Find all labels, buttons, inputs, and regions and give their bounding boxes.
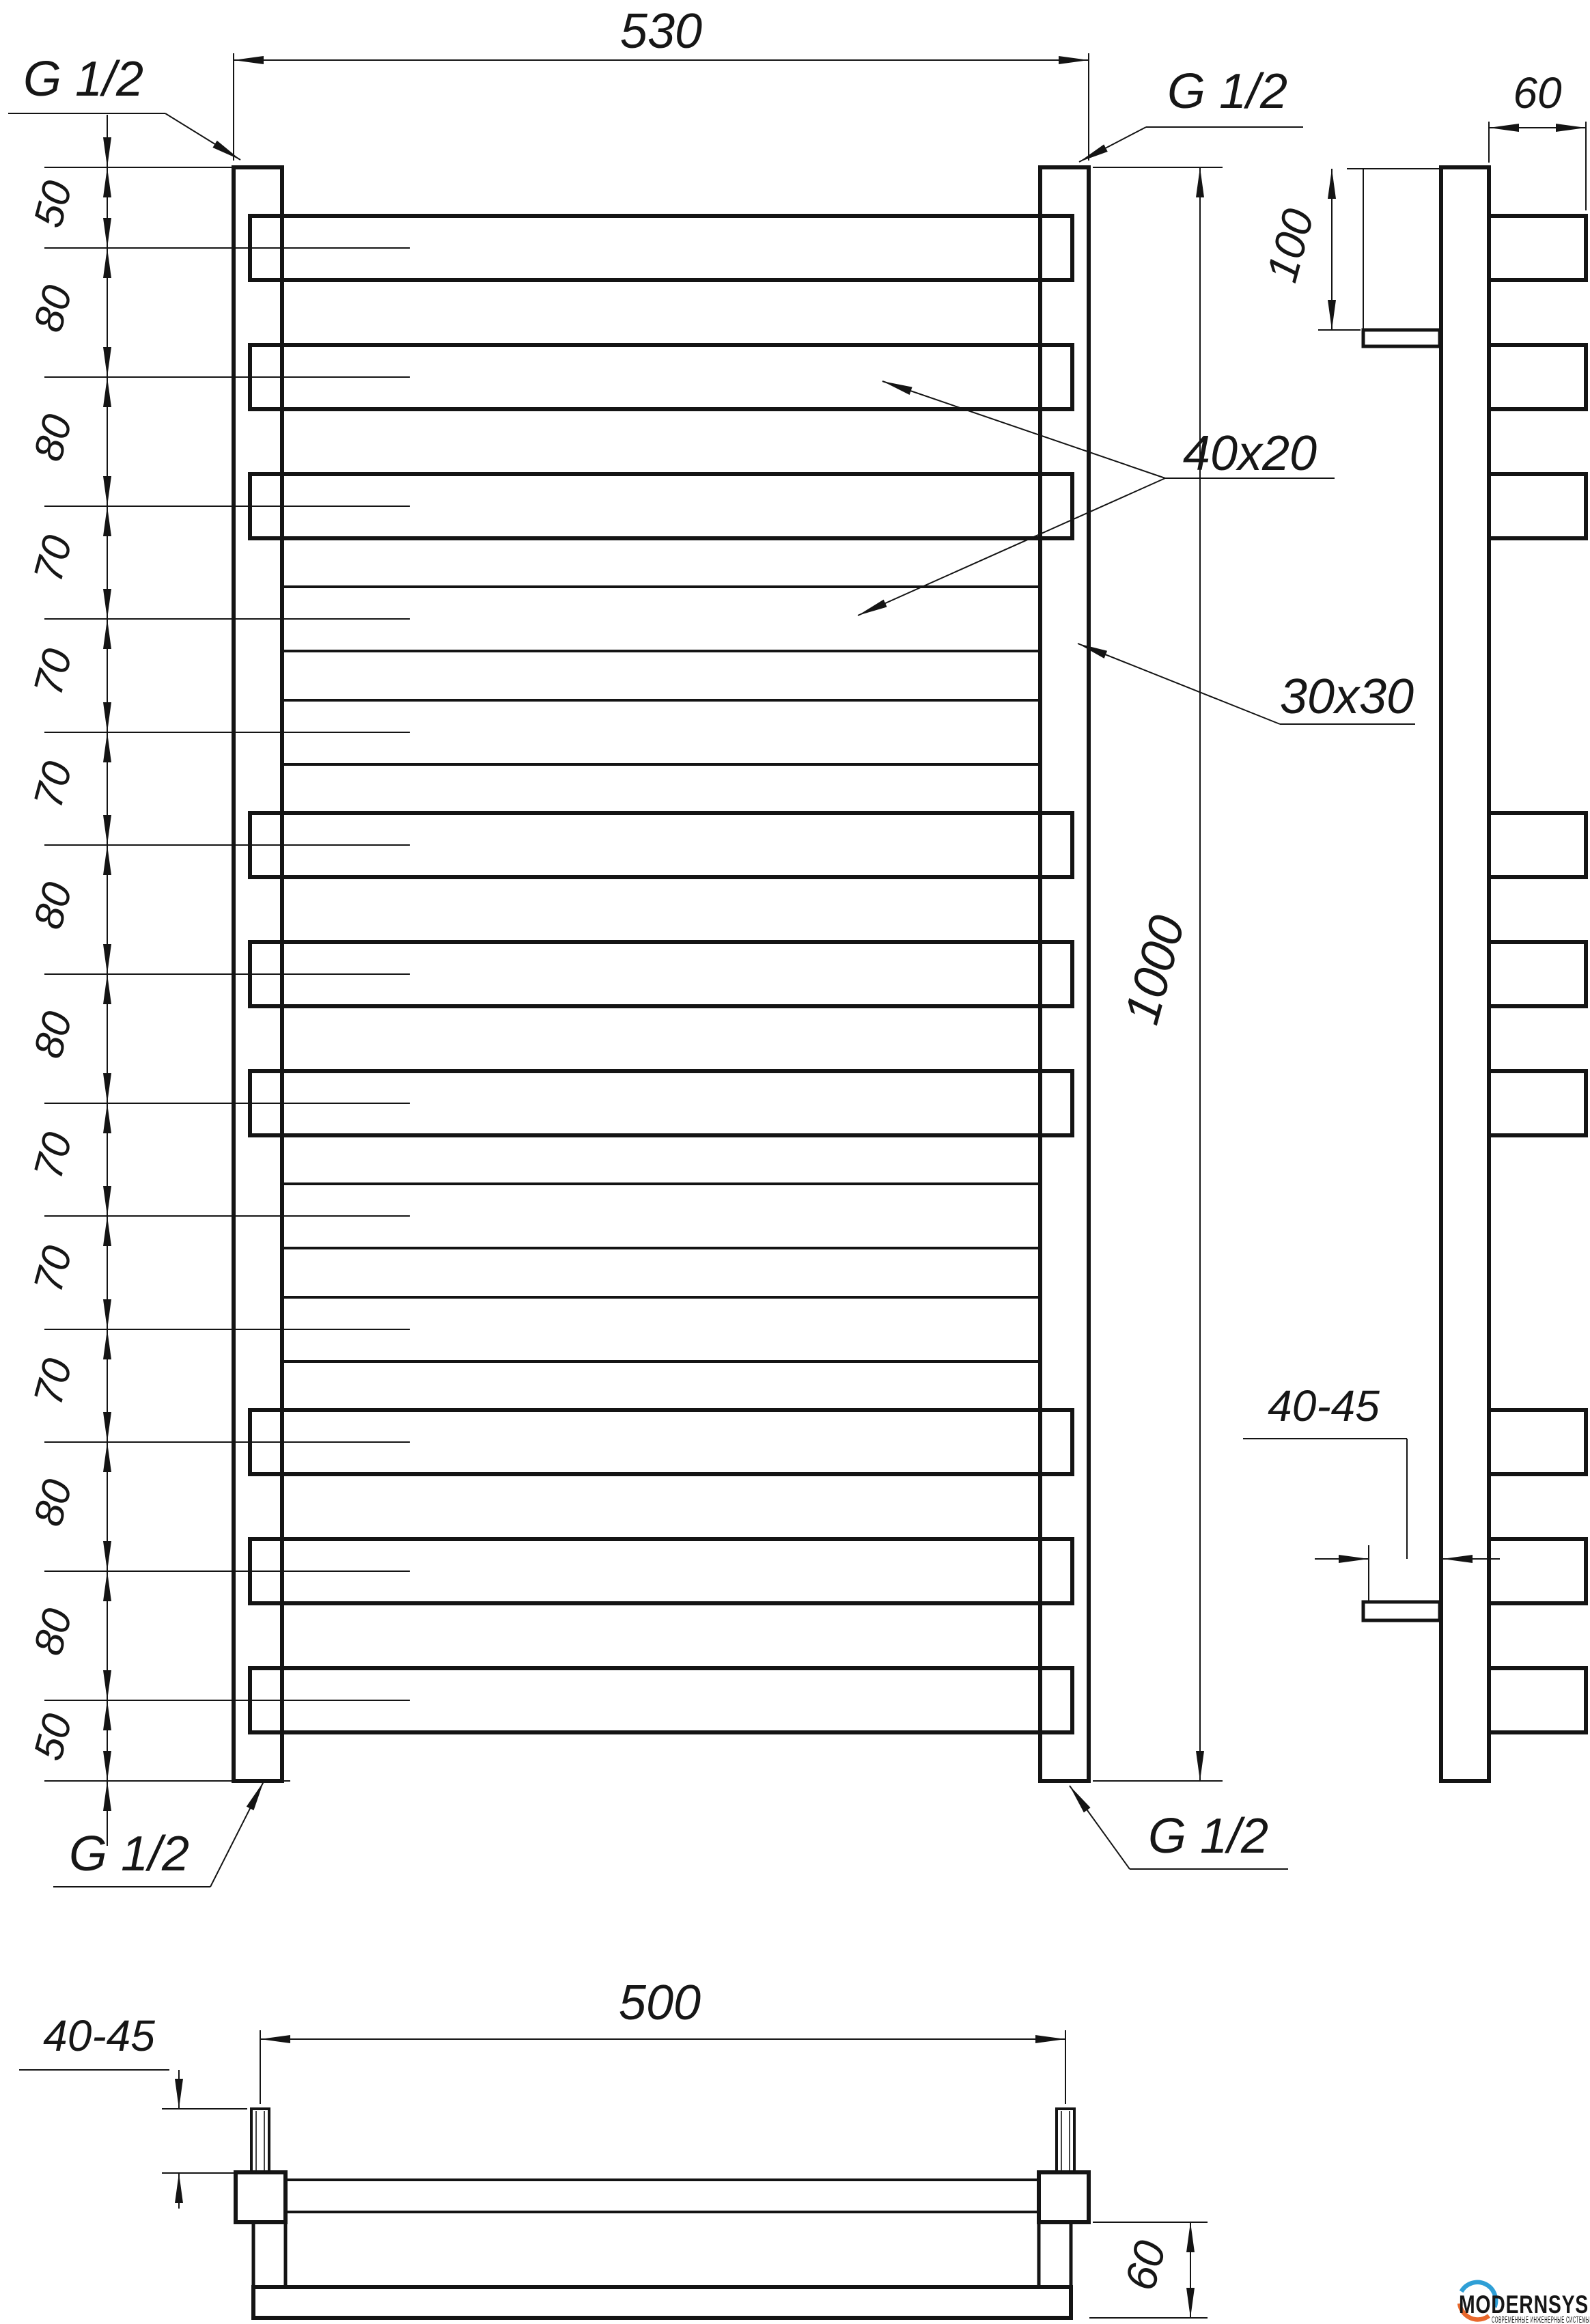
chain-num: 80 — [25, 410, 81, 466]
chain-num: 70 — [25, 1354, 81, 1410]
chain-num: 80 — [25, 878, 81, 934]
chain-num: 80 — [25, 281, 81, 337]
logo-wordmark: MODERNSYS — [1459, 2291, 1589, 2319]
dim-530: 530 — [234, 4, 1089, 161]
top-wall-bracket — [1347, 169, 1441, 346]
wall-pin-left — [251, 2109, 269, 2172]
side-bar — [1489, 345, 1586, 409]
side-bar — [1489, 1668, 1586, 1732]
rail-section-right — [1039, 2172, 1089, 2222]
chain-num: 70 — [25, 757, 81, 813]
dim-text-530: 530 — [620, 4, 702, 59]
dim-text-500: 500 — [619, 1976, 701, 2030]
drawing-canvas: 530 — [0, 0, 1590, 2324]
thread-text: G 1/2 — [1167, 64, 1287, 119]
dim-1000: 1000 — [1093, 167, 1223, 1781]
side-bar — [1489, 1410, 1586, 1474]
leader-arrow — [882, 381, 1165, 478]
logo-tagline: СОВРЕМЕННЫЕ ИНЖЕНЕРНЫЕ СИСТЕМЫ — [1492, 2315, 1590, 2324]
dim-text-1000: 1000 — [1114, 910, 1195, 1029]
thread-text: G 1/2 — [23, 52, 143, 107]
dimension-chain: 50 80 80 70 70 70 80 80 70 70 70 80 80 5… — [25, 115, 410, 1846]
side-view: 100 60 40-45 — [1243, 68, 1586, 1781]
dim-40-45-plan: 40-45 — [19, 2011, 247, 2209]
thread-label-top-left: G 1/2 — [8, 52, 240, 160]
leader-arrow — [858, 478, 1165, 615]
side-bar — [1489, 1539, 1586, 1603]
chain-num: 50 — [25, 176, 81, 232]
callout-text-30x30: 30x30 — [1280, 669, 1414, 724]
thread-text: G 1/2 — [1148, 1809, 1268, 1864]
leader-arrow — [1078, 644, 1280, 724]
dim-text-60: 60 — [1115, 2235, 1175, 2295]
dim-text-60: 60 — [1513, 68, 1562, 117]
chain-num: 50 — [25, 1709, 81, 1765]
leader-arrow — [1070, 1786, 1130, 1869]
side-rail — [1441, 167, 1489, 1781]
pin-body — [251, 2109, 269, 2172]
side-bar — [1489, 813, 1586, 877]
logo: MODERNSYS СОВРЕМЕННЫЕ ИНЖЕНЕРНЫЕ СИСТЕМЫ — [1459, 2282, 1590, 2324]
side-bar — [1489, 216, 1586, 280]
side-bars — [1489, 216, 1586, 1732]
towel-rail-drawing: 530 — [0, 0, 1590, 2324]
dim-text-40-45: 40-45 — [1268, 1381, 1380, 1430]
side-bar — [1489, 474, 1586, 538]
bracket-flange — [1363, 1602, 1440, 1620]
dim-text-40-45: 40-45 — [43, 2011, 155, 2060]
front-bar-plan — [253, 2287, 1071, 2318]
leader-arrow — [165, 113, 240, 160]
bottom-wall-bracket — [1363, 1545, 1440, 1620]
leader-arrow — [210, 1782, 264, 1887]
dim-100: 100 — [1257, 169, 1361, 330]
chain-num: 70 — [25, 1128, 81, 1184]
front-view: 530 — [8, 4, 1415, 1887]
dim-500: 500 — [260, 1976, 1065, 2104]
plan-view: 500 40-45 60 — [19, 1976, 1208, 2318]
callout-30x30: 30x30 — [1078, 644, 1415, 724]
side-bar — [1489, 1071, 1586, 1135]
thread-label-top-right: G 1/2 — [1079, 64, 1303, 162]
chain-num: 70 — [25, 531, 81, 587]
bracket-flange — [1363, 330, 1440, 346]
thread-label-bottom-right: G 1/2 — [1070, 1786, 1288, 1869]
chain-num: 80 — [25, 1604, 81, 1660]
thread-label-bottom-left: G 1/2 — [53, 1782, 264, 1887]
dim-40-45-side: 40-45 — [1243, 1381, 1500, 1559]
chain-num: 70 — [25, 1241, 81, 1297]
rail-section-left — [236, 2172, 285, 2222]
callout-text-40x20: 40x20 — [1183, 426, 1317, 481]
callout-40x20: 40x20 — [858, 381, 1335, 615]
pin-body — [1057, 2109, 1074, 2172]
thread-text: G 1/2 — [69, 1827, 189, 1881]
chain-num: 80 — [25, 1007, 81, 1063]
dim-60-side: 60 — [1489, 68, 1586, 210]
side-bar — [1489, 942, 1586, 1006]
chain-num: 80 — [25, 1475, 81, 1531]
dim-60-plan: 60 — [1089, 2222, 1208, 2318]
chain-num: 70 — [25, 644, 81, 700]
dim-text-100: 100 — [1257, 204, 1323, 287]
wall-pin-right — [1057, 2109, 1074, 2172]
